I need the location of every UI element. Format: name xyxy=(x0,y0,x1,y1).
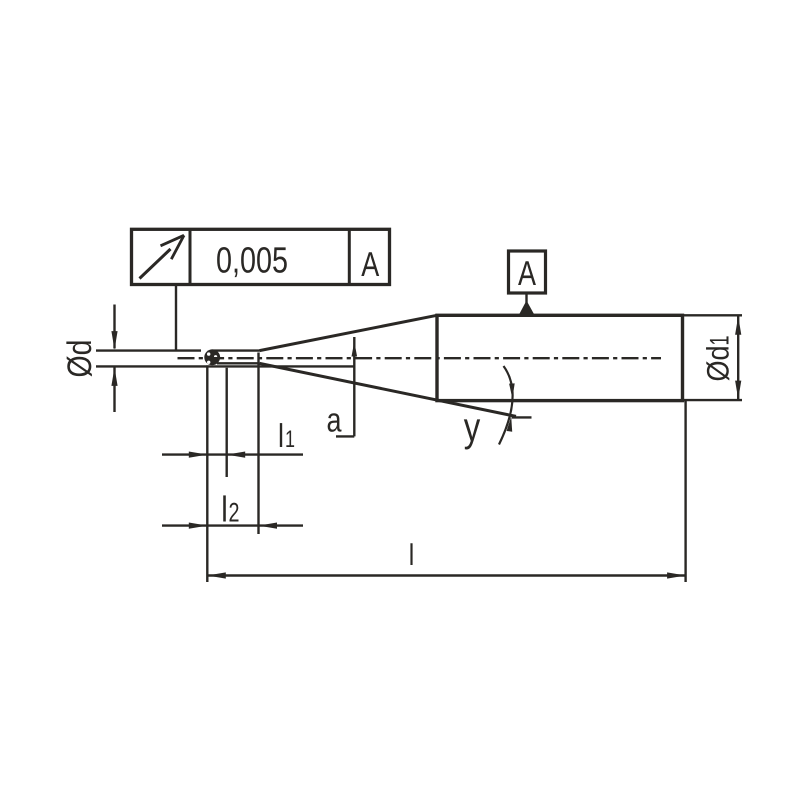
svg-text:y: y xyxy=(464,404,481,450)
svg-text:l: l xyxy=(278,417,284,454)
svg-text:l: l xyxy=(409,539,415,572)
svg-text:0,005: 0,005 xyxy=(216,240,288,281)
svg-text:l: l xyxy=(221,489,228,530)
svg-text:1: 1 xyxy=(285,426,295,453)
svg-text:A: A xyxy=(518,255,536,293)
svg-text:a: a xyxy=(327,402,342,440)
svg-text:A: A xyxy=(361,246,379,284)
svg-text:Ød: Ød xyxy=(61,340,99,378)
svg-text:2: 2 xyxy=(229,498,240,528)
svg-text:Ød1: Ød1 xyxy=(701,336,736,382)
